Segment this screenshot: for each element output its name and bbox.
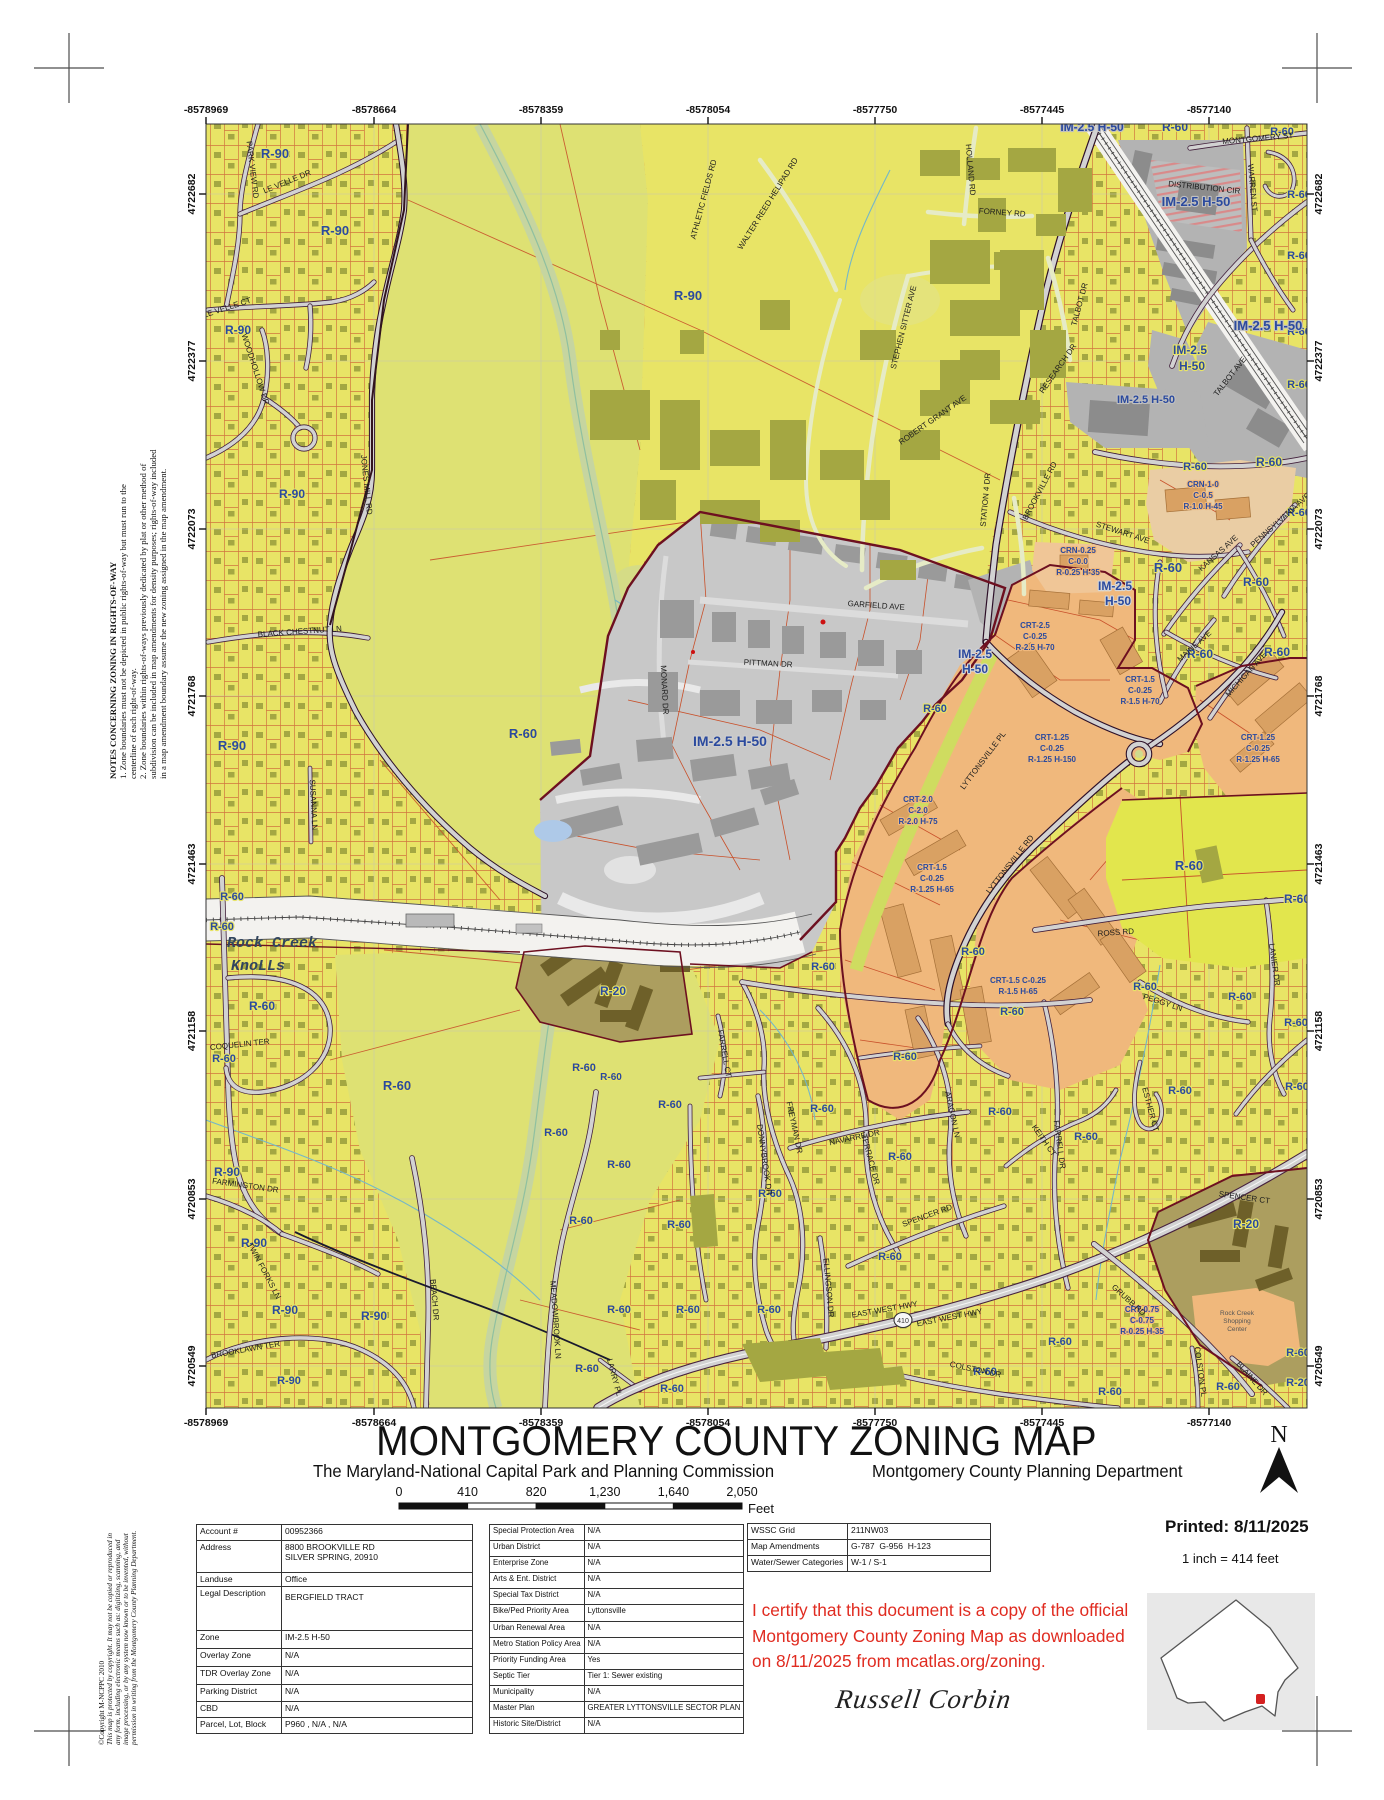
svg-text:IM-2.5: IM-2.5 [1173, 343, 1207, 357]
svg-text:820: 820 [526, 1485, 547, 1499]
svg-text:2,050: 2,050 [726, 1485, 757, 1499]
svg-text:-8578054: -8578054 [686, 104, 731, 116]
svg-text:4722073: 4722073 [1313, 508, 1325, 549]
svg-text:R-90: R-90 [674, 288, 702, 303]
svg-text:1,230: 1,230 [589, 1485, 620, 1499]
svg-text:4720549: 4720549 [186, 1345, 198, 1386]
svg-text:R-60: R-60 [1228, 991, 1252, 1003]
svg-text:4722682: 4722682 [1313, 173, 1325, 214]
svg-text:4722682: 4722682 [186, 173, 198, 214]
svg-text:CRT-1.5: CRT-1.5 [917, 863, 947, 872]
svg-text:IM-2.5 H-50: IM-2.5 H-50 [1234, 318, 1303, 333]
svg-text:R-60: R-60 [607, 1304, 631, 1316]
svg-text:CRT-1.5 C-0.25: CRT-1.5 C-0.25 [990, 976, 1047, 985]
svg-text:4721158: 4721158 [1313, 1011, 1325, 1051]
svg-text:R-60: R-60 [660, 1383, 684, 1395]
svg-text:R-60: R-60 [210, 921, 234, 933]
svg-text:CRT-2.5: CRT-2.5 [1020, 621, 1050, 630]
svg-text:R-60: R-60 [810, 1103, 834, 1115]
svg-text:4721768: 4721768 [186, 675, 198, 716]
svg-text:4720549: 4720549 [1313, 1345, 1325, 1386]
svg-text:R-60: R-60 [667, 1219, 691, 1231]
svg-text:R-90: R-90 [272, 1303, 298, 1317]
svg-text:R-60: R-60 [1098, 1386, 1122, 1398]
svg-text:IM-2.5 H-50: IM-2.5 H-50 [1162, 194, 1231, 209]
svg-text:410: 410 [897, 1318, 909, 1325]
svg-text:Feet: Feet [748, 1501, 774, 1516]
svg-text:C-0.25: C-0.25 [1040, 744, 1065, 753]
svg-text:R-60: R-60 [1154, 560, 1182, 575]
svg-text:-8578359: -8578359 [519, 104, 564, 116]
svg-text:R-60: R-60 [544, 1127, 568, 1139]
svg-text:R-60: R-60 [572, 1062, 596, 1074]
svg-text:C-0.25: C-0.25 [1023, 632, 1048, 641]
svg-text:R-2.0 H-75: R-2.0 H-75 [898, 817, 938, 826]
svg-text:R-60: R-60 [1284, 892, 1310, 906]
svg-text:4722377: 4722377 [1313, 340, 1325, 381]
svg-text:IM-2.5 H-50: IM-2.5 H-50 [1060, 120, 1124, 134]
svg-text:KnoLLs: KnoLLs [231, 958, 285, 975]
svg-text:R-20: R-20 [1286, 1377, 1310, 1389]
svg-text:R-60: R-60 [1048, 1336, 1072, 1348]
svg-text:R-60: R-60 [212, 1053, 236, 1065]
svg-text:R-90: R-90 [218, 738, 246, 753]
svg-text:R-1.25 H-65: R-1.25 H-65 [1236, 755, 1280, 764]
svg-text:Shopping: Shopping [1223, 1318, 1251, 1325]
svg-text:R-60: R-60 [888, 1151, 912, 1163]
svg-text:R-60: R-60 [1256, 455, 1282, 469]
svg-text:R-60: R-60 [1264, 645, 1290, 659]
svg-text:R-20: R-20 [1233, 1217, 1259, 1231]
svg-text:R-1.25 H-65: R-1.25 H-65 [910, 885, 954, 894]
svg-text:-8578969: -8578969 [184, 104, 229, 116]
svg-text:C-0.75: C-0.75 [1130, 1316, 1155, 1325]
svg-text:R-60: R-60 [1162, 120, 1188, 134]
svg-text:Center: Center [1227, 1326, 1247, 1333]
svg-text:CRT-1.5: CRT-1.5 [1125, 675, 1155, 684]
svg-text:Rock Creek: Rock Creek [227, 935, 318, 952]
svg-text:R-90: R-90 [279, 487, 305, 501]
svg-text:R-60: R-60 [961, 946, 985, 958]
svg-text:R-60: R-60 [757, 1304, 781, 1316]
svg-text:R-60: R-60 [1286, 1347, 1310, 1359]
svg-text:IM-2.5: IM-2.5 [1098, 579, 1132, 593]
svg-text:R-60: R-60 [676, 1304, 700, 1316]
svg-text:C-0.25: C-0.25 [920, 874, 945, 883]
svg-text:R-60: R-60 [1074, 1131, 1098, 1143]
svg-text:4720853: 4720853 [186, 1178, 198, 1219]
svg-text:R-60: R-60 [600, 1072, 622, 1083]
svg-text:R-60: R-60 [1284, 1017, 1308, 1029]
svg-text:R-0.25 H-35: R-0.25 H-35 [1120, 1327, 1164, 1336]
svg-text:R-60: R-60 [1183, 461, 1207, 473]
svg-text:CRN-0.25: CRN-0.25 [1060, 546, 1096, 555]
svg-text:R-60: R-60 [220, 891, 244, 903]
svg-text:R-60: R-60 [1285, 1081, 1309, 1093]
svg-text:C-0.5: C-0.5 [1193, 491, 1213, 500]
svg-text:0: 0 [396, 1485, 403, 1499]
svg-text:4721158: 4721158 [186, 1011, 198, 1051]
svg-text:4722377: 4722377 [186, 340, 198, 381]
svg-text:-8577445: -8577445 [1020, 104, 1065, 116]
svg-text:1,640: 1,640 [658, 1485, 689, 1499]
svg-text:R-60: R-60 [923, 703, 947, 715]
svg-text:C-2.0: C-2.0 [908, 806, 928, 815]
svg-text:R-1.0 H-45: R-1.0 H-45 [1183, 502, 1223, 511]
svg-text:R-60: R-60 [509, 726, 537, 741]
svg-text:R-90: R-90 [321, 223, 349, 238]
svg-text:R-60: R-60 [878, 1251, 902, 1263]
svg-text:R-90: R-90 [277, 1375, 301, 1387]
svg-text:CRT-1.25: CRT-1.25 [1241, 733, 1276, 742]
svg-text:R-60: R-60 [1216, 1381, 1240, 1393]
svg-text:R-60: R-60 [1175, 858, 1203, 873]
svg-text:R-1.5 H-70: R-1.5 H-70 [1120, 697, 1160, 706]
svg-text:R-60: R-60 [1000, 1006, 1024, 1018]
svg-text:Rock Creek: Rock Creek [1220, 1310, 1255, 1317]
svg-text:CRT-1.25: CRT-1.25 [1035, 733, 1070, 742]
svg-text:R-60: R-60 [811, 961, 835, 973]
svg-text:R-60: R-60 [1168, 1085, 1192, 1097]
svg-text:R-60: R-60 [1243, 575, 1269, 589]
svg-text:R-60: R-60 [569, 1215, 593, 1227]
svg-text:R-2.5 H-70: R-2.5 H-70 [1015, 643, 1055, 652]
svg-text:R-60: R-60 [249, 999, 275, 1013]
svg-text:CRT-2.0: CRT-2.0 [903, 795, 933, 804]
svg-text:H-50: H-50 [1179, 359, 1205, 373]
svg-text:R-60: R-60 [575, 1363, 599, 1375]
svg-text:R-60: R-60 [988, 1106, 1012, 1118]
svg-text:410: 410 [457, 1485, 478, 1499]
svg-text:-8577750: -8577750 [853, 104, 898, 116]
svg-text:R-90: R-90 [361, 1309, 387, 1323]
svg-text:-8577140: -8577140 [1187, 104, 1232, 116]
svg-text:C-0.25: C-0.25 [1246, 744, 1271, 753]
svg-text:R-1.25 H-150: R-1.25 H-150 [1028, 755, 1077, 764]
svg-text:R-60: R-60 [893, 1051, 917, 1063]
svg-text:H-50: H-50 [962, 662, 988, 676]
svg-text:R-1.5 H-65: R-1.5 H-65 [998, 987, 1038, 996]
svg-text:R-90: R-90 [261, 146, 289, 161]
svg-text:R-0.25 H-35: R-0.25 H-35 [1056, 568, 1100, 577]
svg-text:CRN-1-0: CRN-1-0 [1187, 480, 1219, 489]
svg-text:C-0.25: C-0.25 [1128, 686, 1153, 695]
svg-text:IM-2.5: IM-2.5 [958, 647, 992, 661]
svg-text:H-50: H-50 [1105, 594, 1131, 608]
svg-text:-8578664: -8578664 [352, 104, 397, 116]
svg-text:R-60: R-60 [607, 1159, 631, 1171]
svg-text:4721768: 4721768 [1313, 675, 1325, 716]
svg-text:4722073: 4722073 [186, 508, 198, 549]
svg-text:IM-2.5 H-50: IM-2.5 H-50 [693, 733, 767, 749]
svg-text:C-0.0: C-0.0 [1068, 557, 1088, 566]
svg-text:R-60: R-60 [658, 1099, 682, 1111]
svg-text:4721463: 4721463 [186, 843, 198, 884]
svg-text:IM-2.5 H-50: IM-2.5 H-50 [1117, 394, 1175, 406]
svg-text:R-20: R-20 [600, 984, 626, 998]
svg-text:4720853: 4720853 [1313, 1178, 1325, 1219]
svg-text:R-60: R-60 [383, 1078, 411, 1093]
svg-text:4721463: 4721463 [1313, 843, 1325, 884]
